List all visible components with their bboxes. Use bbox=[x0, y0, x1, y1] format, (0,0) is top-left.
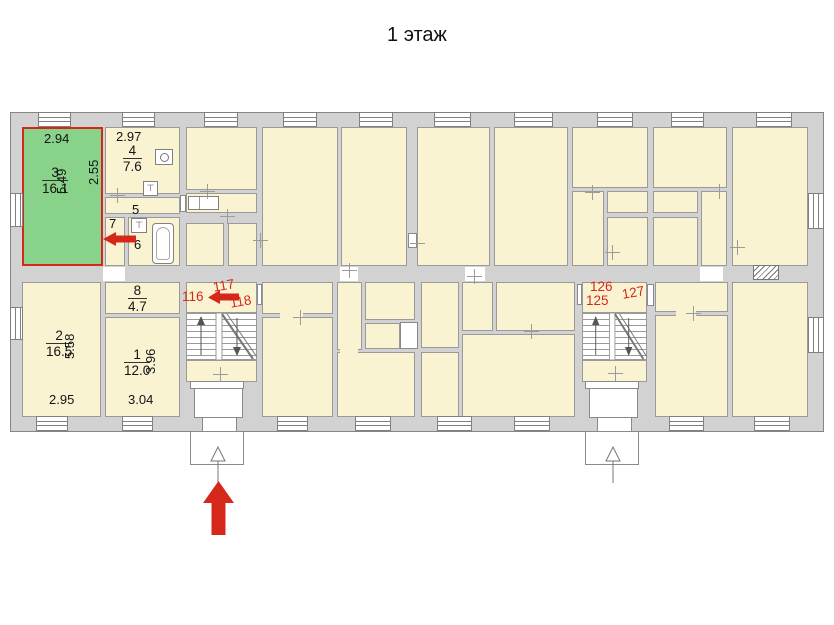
unitA-subroom bbox=[607, 191, 648, 213]
door-opening bbox=[180, 195, 186, 212]
door-mark bbox=[253, 233, 268, 248]
unitB-subroom bbox=[653, 191, 698, 213]
window bbox=[597, 112, 633, 127]
window bbox=[754, 416, 790, 431]
window bbox=[671, 112, 704, 127]
unit3-room-topright bbox=[365, 282, 415, 320]
unit3-room-bottom bbox=[337, 352, 415, 417]
window bbox=[204, 112, 238, 127]
window bbox=[355, 416, 391, 431]
floor-plan: 1 этаж bbox=[0, 0, 834, 625]
unit5-room bbox=[655, 315, 728, 417]
window bbox=[514, 112, 553, 127]
unit2-room bbox=[186, 127, 257, 190]
door-mark bbox=[200, 184, 215, 199]
entrance-direction-arrow-icon bbox=[205, 445, 231, 483]
room-8-label: 84.7 bbox=[128, 283, 147, 314]
door-opening bbox=[400, 322, 418, 349]
unit-116-label: 116 bbox=[182, 290, 204, 304]
hatched-niche bbox=[753, 265, 779, 280]
unitB-hall bbox=[701, 191, 727, 266]
window bbox=[277, 416, 308, 431]
door-opening bbox=[647, 284, 654, 306]
window bbox=[283, 112, 317, 127]
room-top bbox=[341, 127, 407, 266]
room-bottom-right bbox=[732, 282, 808, 417]
floor-title: 1 этаж bbox=[0, 28, 834, 42]
entrance-doorway bbox=[597, 418, 632, 431]
unit-125-label: 125 bbox=[586, 294, 609, 308]
entrance-vestibule bbox=[589, 388, 638, 418]
door-mark bbox=[342, 263, 357, 278]
highlight-arrow-left-icon bbox=[103, 231, 136, 247]
sink-icon: ⊤ bbox=[143, 181, 158, 196]
window bbox=[122, 112, 155, 127]
unit-126-label: 126 bbox=[590, 280, 613, 294]
midwall-opening bbox=[103, 267, 125, 281]
window bbox=[36, 416, 68, 431]
unit3-room-left bbox=[262, 317, 333, 417]
door-opening bbox=[577, 284, 582, 305]
door-mark bbox=[213, 367, 228, 382]
door-mark bbox=[605, 245, 620, 260]
dimension-label: 2.94 bbox=[44, 132, 69, 146]
stove-icon bbox=[155, 149, 173, 165]
window bbox=[122, 416, 153, 431]
unit4-room-a bbox=[462, 282, 493, 331]
door-opening bbox=[257, 284, 262, 305]
entrance-direction-arrow-icon bbox=[600, 445, 626, 483]
door-mark bbox=[608, 366, 623, 381]
dimension-label: 2.97 bbox=[116, 130, 141, 144]
window bbox=[359, 112, 393, 127]
room-top bbox=[417, 127, 490, 266]
door-mark bbox=[585, 185, 600, 200]
unitA-hall bbox=[572, 191, 604, 266]
entrance-doorway bbox=[202, 418, 237, 431]
unitB-hall bbox=[653, 217, 698, 266]
door-mark bbox=[730, 240, 745, 255]
room-top bbox=[262, 127, 338, 266]
unit4-room-big-ext bbox=[421, 352, 459, 417]
door-mark bbox=[712, 184, 727, 199]
door-mark bbox=[686, 306, 701, 321]
door-mark bbox=[110, 188, 125, 203]
room-top bbox=[494, 127, 568, 266]
dimension-label: 2.55 bbox=[87, 160, 100, 185]
window bbox=[10, 193, 23, 227]
unitB-room bbox=[653, 127, 727, 188]
dimension-label: 5.58 bbox=[63, 334, 76, 359]
door-opening bbox=[340, 349, 358, 353]
dimension-label: 3.96 bbox=[144, 349, 157, 374]
unit4-hall bbox=[421, 282, 459, 348]
window bbox=[38, 112, 71, 127]
window bbox=[434, 112, 471, 127]
room-3-highlighted[interactable] bbox=[22, 127, 103, 266]
unit3-closet bbox=[365, 323, 400, 349]
window bbox=[808, 317, 824, 353]
door-mark bbox=[293, 310, 308, 325]
window bbox=[10, 307, 23, 340]
window bbox=[514, 416, 550, 431]
main-entrance-arrow-up-icon bbox=[203, 481, 234, 535]
window bbox=[437, 416, 472, 431]
dimension-label: 3.04 bbox=[128, 393, 153, 407]
room-5-label: 5 bbox=[132, 203, 139, 217]
bathtub-icon bbox=[152, 223, 174, 264]
dimension-label: 5.49 bbox=[55, 169, 68, 194]
room-7-label: 7 bbox=[109, 217, 116, 231]
room-4-label: 47.6 bbox=[123, 143, 142, 174]
dimension-label: 2.95 bbox=[49, 393, 74, 407]
unitA-room bbox=[572, 127, 648, 188]
unit2-room-small-left bbox=[186, 223, 224, 266]
window bbox=[669, 416, 704, 431]
entrance-vestibule bbox=[194, 388, 243, 418]
unit4-room-big bbox=[462, 334, 575, 417]
unit-arrow-left-icon bbox=[208, 290, 239, 305]
door-mark bbox=[524, 324, 539, 339]
door-mark bbox=[467, 269, 482, 284]
window bbox=[756, 112, 792, 127]
door-mark bbox=[410, 236, 425, 251]
window bbox=[808, 193, 824, 229]
door-mark bbox=[220, 209, 235, 224]
staircase-1-detail bbox=[186, 313, 257, 360]
staircase-2-detail bbox=[582, 313, 647, 360]
midwall-opening bbox=[700, 267, 723, 281]
unit3-corridor bbox=[337, 282, 362, 350]
